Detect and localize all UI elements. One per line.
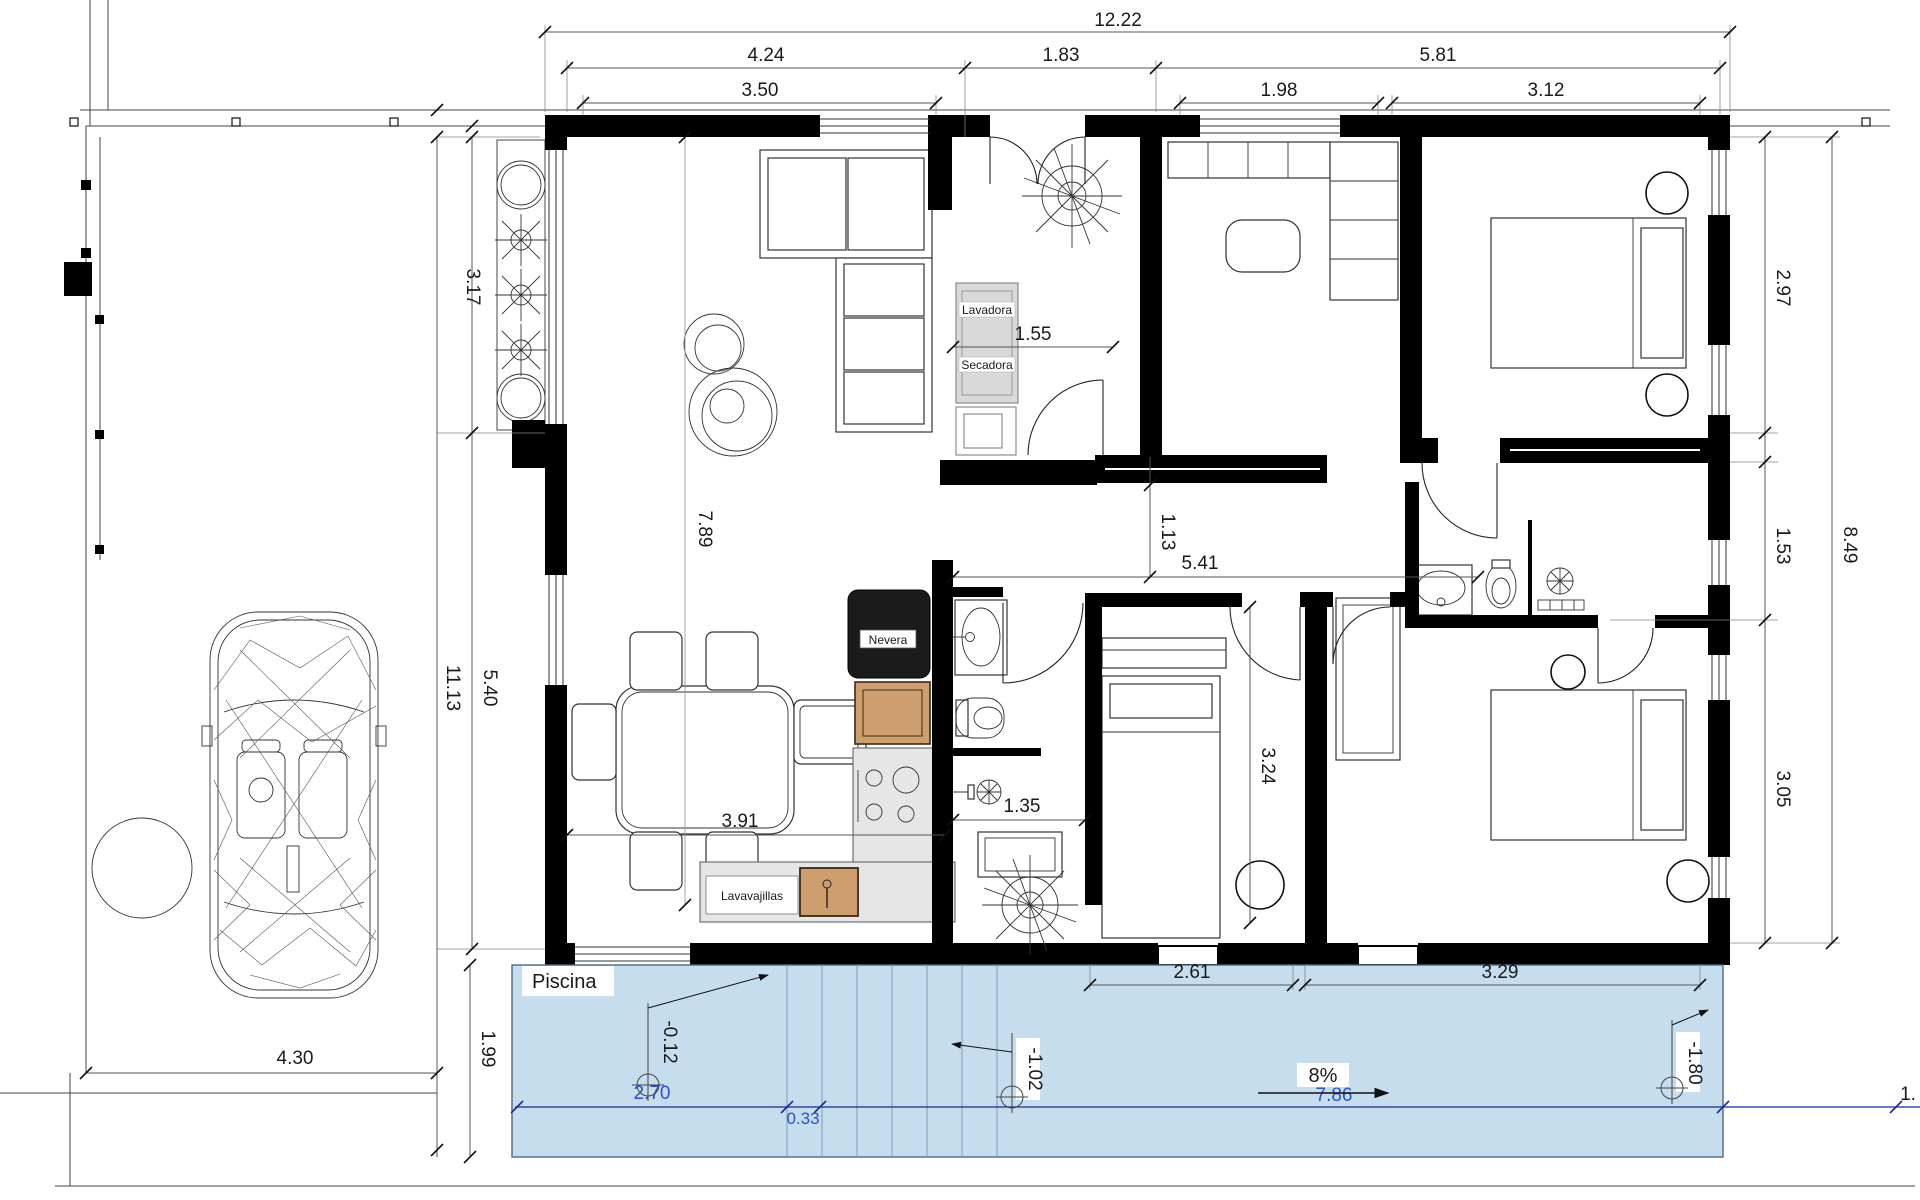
dryer-label: Secadora — [961, 358, 1013, 372]
dim-left-mid: 5.40 — [479, 670, 500, 707]
dim-right-upper: 2.97 — [1772, 270, 1793, 307]
pool-label: Piscina — [532, 971, 597, 993]
floor-plan-canvas: Nevera Lavavajillas Lavadora Secadora — [0, 0, 1920, 1200]
dim-right-mid: 1.53 — [1772, 528, 1793, 565]
dishwasher-label: Lavavajillas — [721, 889, 783, 903]
window-bottom-2 — [1358, 946, 1418, 965]
svg-text:-1.02: -1.02 — [1024, 1047, 1045, 1090]
dim-left-upper: 3.17 — [462, 269, 483, 306]
dim-right-total: 8.49 — [1839, 527, 1860, 564]
svg-text:-0.12: -0.12 — [659, 1020, 680, 1063]
dim-right-lower: 3.05 — [1772, 771, 1793, 808]
dim-bedroom-v: 3.24 — [1257, 748, 1278, 785]
dim-hall-v: 1.13 — [1157, 514, 1178, 551]
dim-top-mid: 1.83 — [1043, 45, 1080, 66]
dim-bottom-right-win: 3.29 — [1482, 962, 1519, 983]
dim-top-left: 4.24 — [748, 45, 785, 66]
pool-dim-b: 7.86 — [1316, 1085, 1353, 1106]
pool-slope: 8% — [1309, 1065, 1338, 1087]
kitchen-cabinet — [855, 682, 930, 744]
fridge-label: Nevera — [869, 633, 908, 647]
svg-text:-1.80: -1.80 — [1684, 1041, 1705, 1084]
dim-hall-h: 5.41 — [1182, 553, 1219, 574]
dim-kitchen: 3.91 — [722, 811, 759, 832]
pool: Piscina — [512, 965, 1723, 1157]
dim-top-left-win: 3.50 — [742, 80, 779, 101]
pool-dim-a: 2.70 — [634, 1083, 671, 1104]
dim-drive: 4.30 — [277, 1048, 314, 1069]
terrace-planters — [495, 140, 547, 468]
wardrobe-nook — [1336, 598, 1400, 760]
dim-bottom-left-win: 2.61 — [1174, 962, 1211, 983]
dim-bath: 1.35 — [1004, 796, 1041, 817]
pool-dim-step: 0.33 — [786, 1109, 819, 1128]
dim-top-mid-win: 1.98 — [1261, 80, 1298, 101]
dim-top-total: 12.22 — [1094, 10, 1142, 31]
dim-top-right-win: 3.12 — [1528, 80, 1565, 101]
dim-left-total: 11.13 — [442, 665, 463, 711]
fence-posts — [64, 180, 104, 554]
dim-deck: 1.99 — [477, 1031, 498, 1068]
dim-laundry: 1.55 — [1015, 324, 1052, 345]
laundry: Lavadora Secadora — [956, 283, 1018, 455]
dim-living-v: 7.89 — [694, 511, 715, 548]
car — [202, 612, 386, 998]
dim-top-right: 5.81 — [1420, 45, 1457, 66]
tree — [92, 818, 192, 918]
sink-cabinet — [800, 868, 858, 916]
pool-dim-edge: 1. — [1900, 1084, 1916, 1105]
washer-label: Lavadora — [962, 303, 1012, 317]
car-wireframe — [214, 616, 376, 988]
